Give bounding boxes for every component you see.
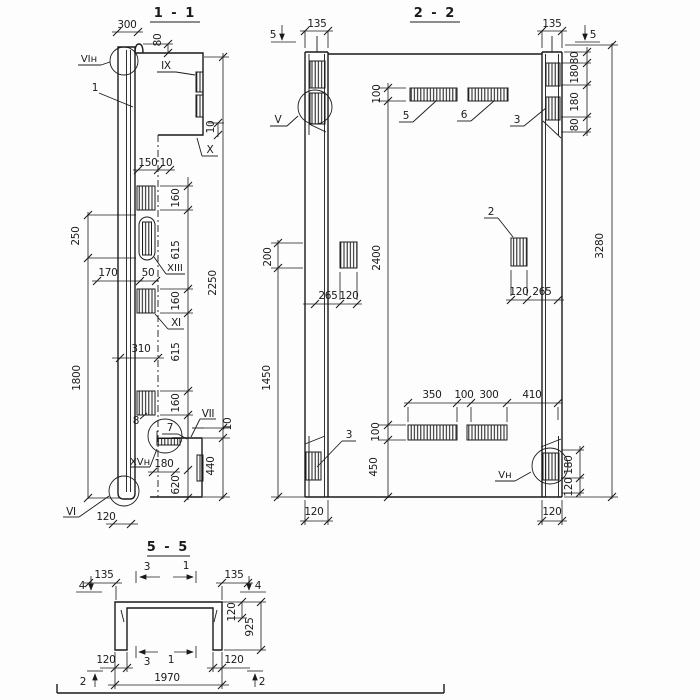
rebar-inserts-2-2 [306,61,560,480]
dim-615-2: 615 [170,342,182,361]
insert-ix-1 [196,72,203,92]
label-3-top: 3 [514,114,520,126]
dim-1450: 1450 [261,365,273,391]
cut-mark-4-right: 4 [255,580,262,592]
cut-mark-3-top: 3 [144,561,150,573]
dim-80-1: 80 [569,52,581,65]
dim-100-top: 100 [371,84,383,103]
label-2: 2 [488,206,494,218]
dim-100-mid: 100 [454,389,473,401]
dim-120-bottom-right: 120 [224,654,243,666]
label-x: X [207,144,214,156]
dim-410: 410 [522,389,541,401]
column-outline-1-1 [118,44,204,499]
dim-160-1: 160 [170,188,182,207]
dim-3280: 3280 [594,233,606,259]
label-8: 8 [133,415,139,427]
cut-mark-1-bottom: 1 [168,654,174,666]
insert-bottom [197,455,203,481]
label-xvn: XVн [130,457,150,468]
support-plate-7 [157,439,180,446]
detail-circle-7 [148,419,182,453]
label-v: V [275,114,283,126]
dim-50: 50 [142,267,155,279]
cut-mark-2-left: 2 [80,676,86,688]
dim-300: 300 [479,389,498,401]
insert-ix-2 [196,95,203,117]
dim-135-right: 135 [224,569,243,581]
dim-2400: 2400 [371,245,383,271]
dim-135-left: 135 [307,18,326,30]
dim-10-mid: 10 [160,157,173,169]
dim-2250: 2250 [207,270,219,296]
dim-135-right: 135 [542,18,561,30]
label-ix: IX [161,60,171,72]
cut-mark-5-right: 5 [590,29,596,41]
cut-mark-4-left: 4 [79,580,86,592]
rebar-patch-2 [137,289,155,313]
section-title-5-5: 5 - 5 [147,540,190,555]
section-1-1-view: 1 - 1 300 VIн 1 80 IX 10 X 150 10 250 17… [63,6,234,528]
dim-170: 170 [98,267,117,279]
dim-180-1: 180 [569,64,581,83]
rib-hatch-l3 [306,452,321,480]
dim-310: 310 [131,343,150,355]
dim-620: 620 [170,475,182,494]
dim-10-bot: 10 [222,418,234,431]
section-title-1-1: 1 - 1 [154,6,197,21]
dim-250: 250 [70,226,82,245]
detail-circle-vin [110,47,138,75]
loop-slot-insert [143,222,152,255]
dim-120-top: 120 [226,602,238,621]
dim-80-2: 80 [569,119,581,132]
dim-120-bottom-left: 120 [96,654,115,666]
rib-hatch-l1 [310,61,325,88]
rebar-5 [410,88,457,101]
section-2-2-view: 2 - 2 135 5 5 135 80 180 180 80 3280 100… [261,6,618,525]
dim-440: 440 [205,456,217,475]
drawing-canvas: 1 - 1 300 VIн 1 80 IX 10 X 150 10 250 17… [0,0,700,700]
channel-outline-5-5 [115,602,222,650]
label-vn: Vн [498,470,511,481]
rebar-patch-3 [137,391,155,415]
label-vi: VI [66,506,76,518]
dim-300: 300 [117,19,136,31]
label-vii: VII [202,408,215,420]
dim-265-right: 265 [532,286,551,298]
label-5: 5 [403,110,409,122]
dim-180: 180 [154,458,173,470]
drawing-sheet: 1 - 1 300 VIн 1 80 IX 10 X 150 10 250 17… [0,0,700,700]
cut-mark-1-top: 1 [183,560,189,572]
label-xi: XI [171,317,181,329]
dim-160-2: 160 [170,291,182,310]
dim-200: 200 [262,247,274,266]
cut-mark-5-left: 5 [270,29,276,41]
dim-120-col-right: 120 [542,506,561,518]
cut-mark-2-right: 2 [259,676,265,688]
rebar-6 [468,88,508,101]
dim-80: 80 [152,34,164,47]
label-1: 1 [92,82,98,94]
dim-350: 350 [422,389,441,401]
dim-150: 150 [138,157,157,169]
dim-615-1: 615 [170,240,182,259]
rib-hatch-r1 [546,63,560,86]
rib-hatch-l2 [310,93,325,124]
dim-10-top: 10 [205,121,217,134]
dim-120-right1: 120 [509,286,528,298]
dim-925: 925 [244,617,256,636]
rebar-bottom-1 [408,425,457,440]
label-xiii: XIII [167,263,183,274]
dim-135-left: 135 [94,569,113,581]
label-6: 6 [461,109,468,121]
dim-1970: 1970 [154,672,180,684]
label-vin: VIн [81,54,97,65]
dim-180-bottom: 180 [563,455,575,474]
dim-450: 450 [368,457,380,476]
dim-180-2: 180 [569,92,581,111]
section-title-2-2: 2 - 2 [414,6,457,21]
insert-2 [511,238,527,266]
rib-hatch-r2 [546,97,560,120]
rebar-patch-1 [137,186,155,210]
dim-265-left: 265 [318,290,337,302]
rebar-bottom-2 [467,425,507,440]
section-5-5-view: 5 - 5 4 135 3 1 135 4 120 925 120 3 1 12… [76,540,266,689]
dim-120-left1: 120 [339,290,358,302]
dim-160-3: 160 [170,393,182,412]
dim-100-bottom: 100 [370,422,382,441]
dim-1800: 1800 [71,365,83,391]
dim-120-bottom: 120 [563,477,575,496]
insert-mid-left [340,242,357,268]
label-3-bottom: 3 [346,429,352,441]
dim-120-col-left: 120 [304,506,323,518]
cut-mark-3-bottom: 3 [144,656,150,668]
dim-120: 120 [96,511,115,523]
label-7: 7 [167,422,173,434]
rib-hatch-r3 [543,453,559,480]
